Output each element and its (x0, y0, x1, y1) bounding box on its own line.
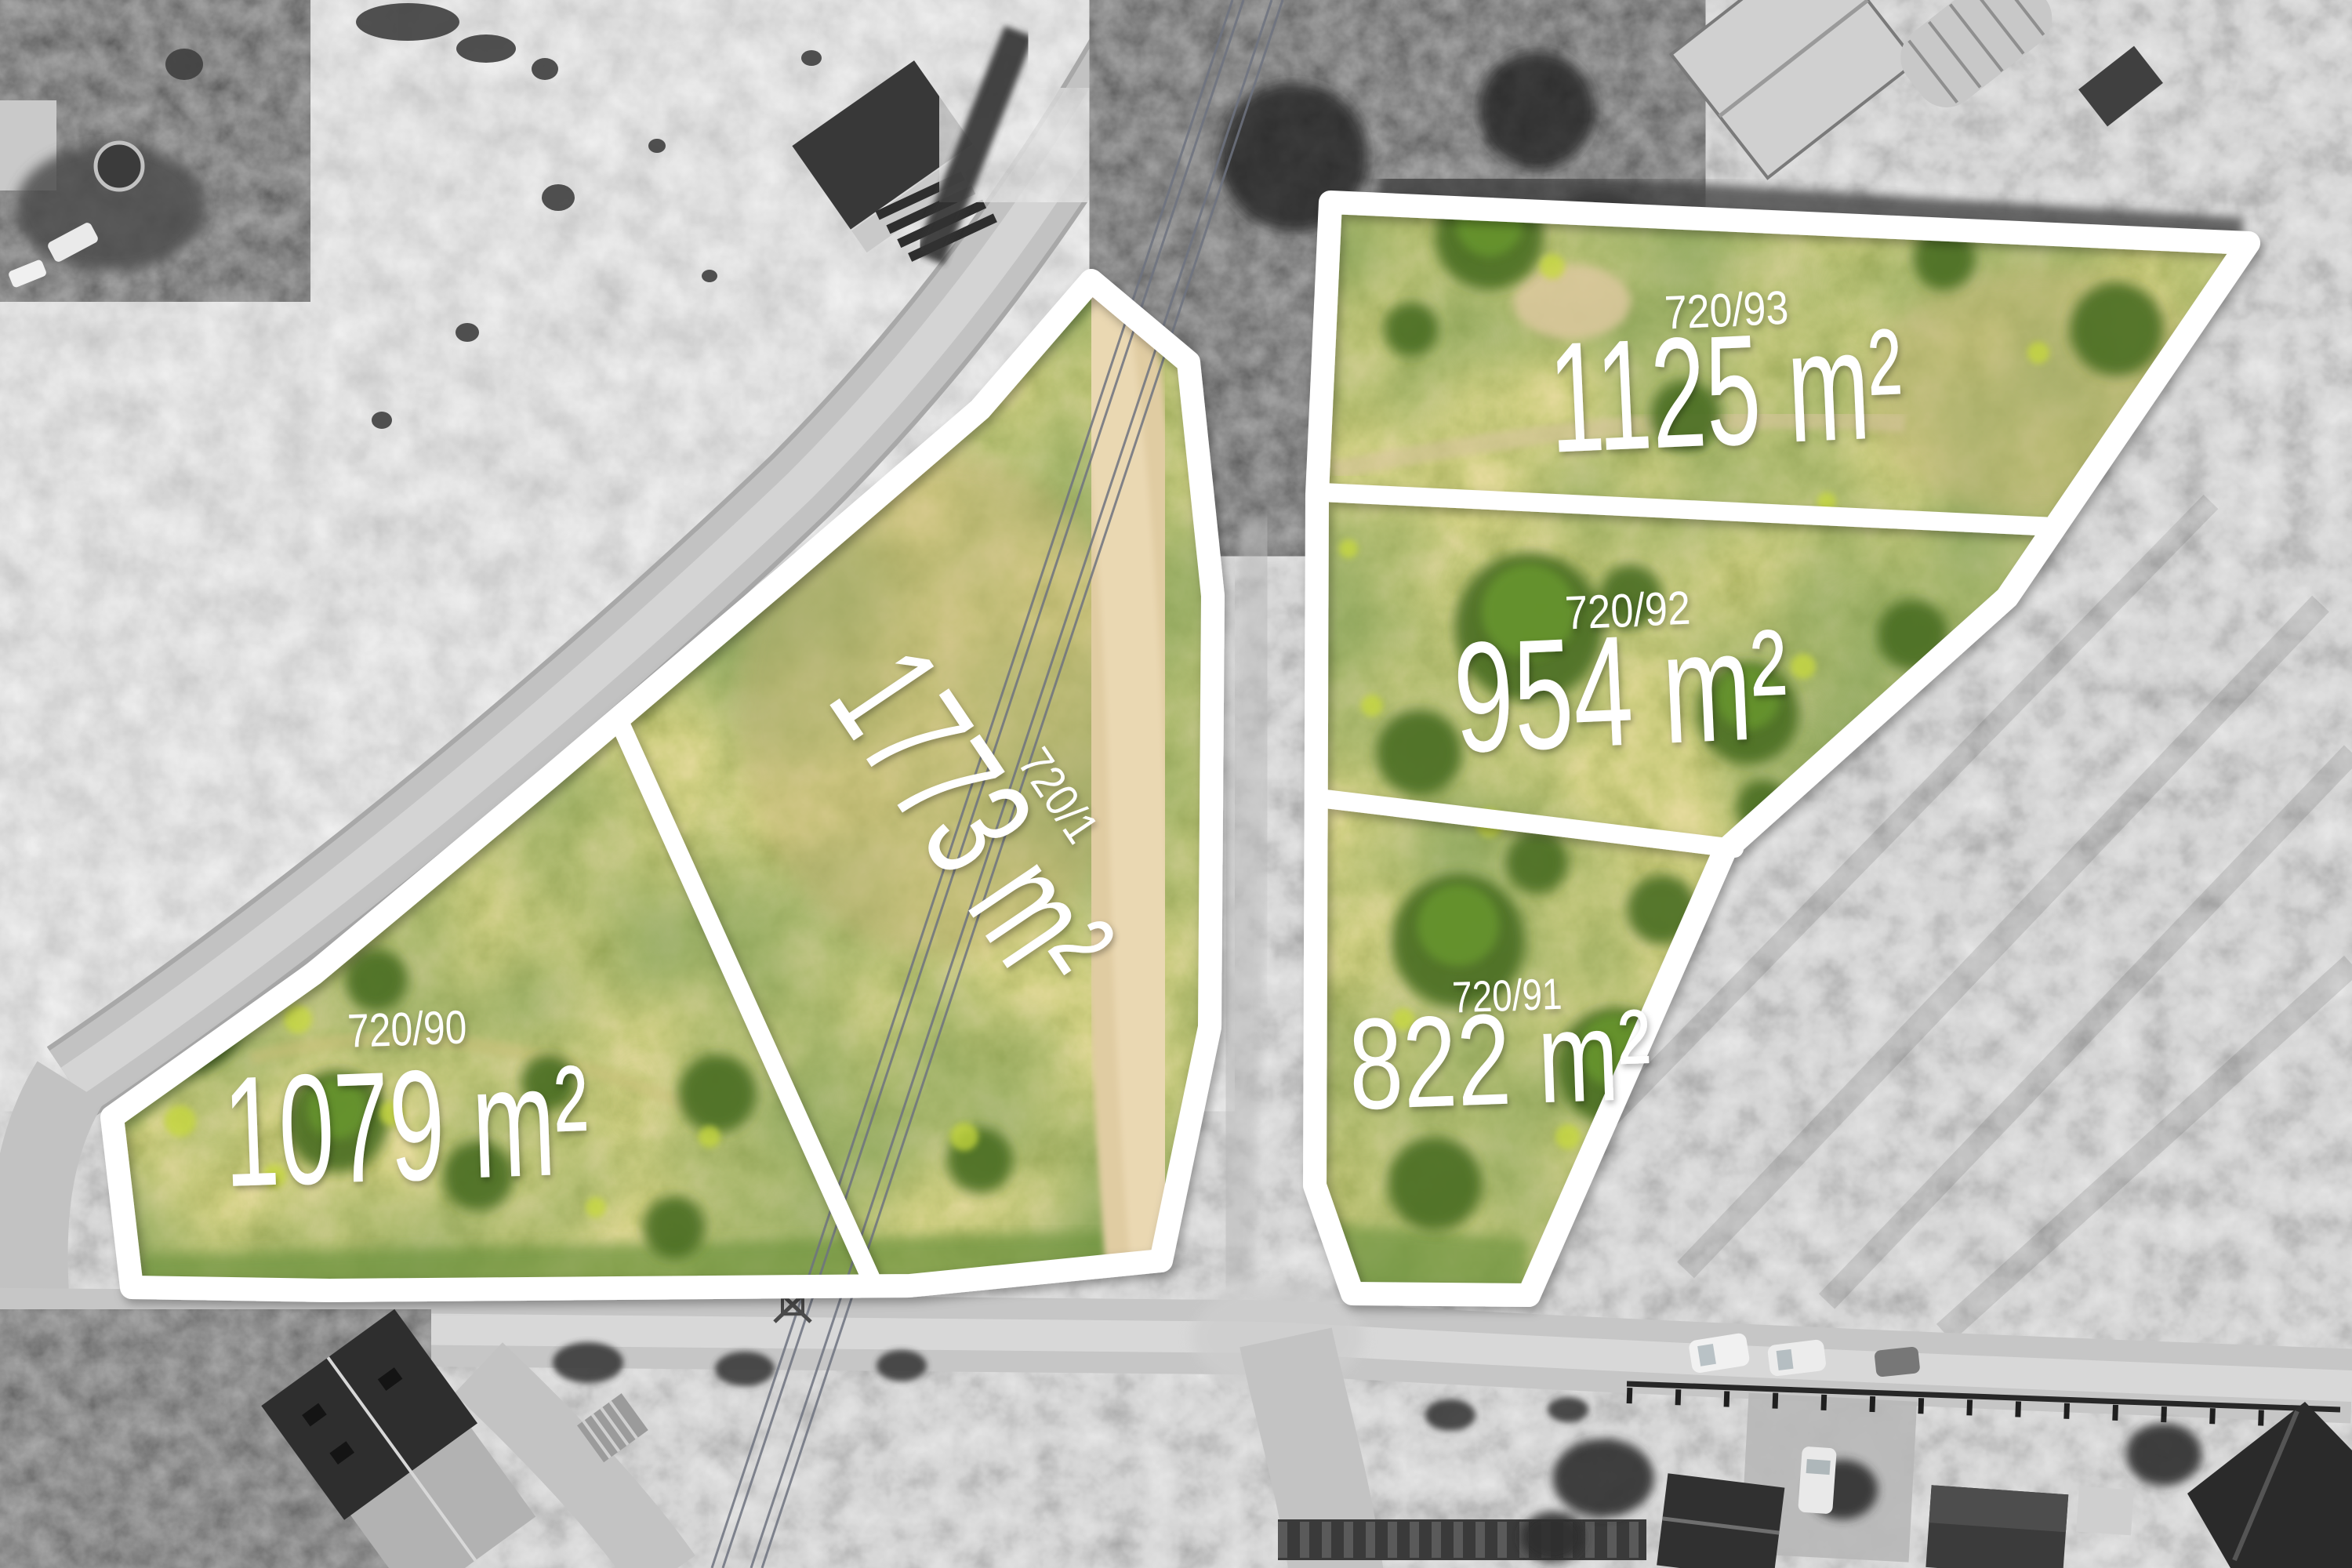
tree (456, 323, 479, 342)
bush (643, 1196, 706, 1258)
parcel-area-label-720-92: 954 m² (1450, 597, 1791, 786)
flower-patch (2027, 342, 2049, 364)
tree (1552, 1439, 1654, 1517)
flower-patch (1361, 695, 1383, 717)
car-windshield (1777, 1349, 1794, 1370)
flower-patch (699, 1126, 720, 1148)
trampoline (96, 143, 143, 190)
hedge (877, 1350, 927, 1381)
tree (1521, 1512, 1584, 1562)
bush (1388, 1137, 1482, 1231)
tree-clump (1478, 51, 1595, 169)
bush (1376, 710, 1462, 796)
bush (2070, 282, 2164, 376)
car-windshield (1697, 1344, 1716, 1367)
car (1798, 1446, 1837, 1515)
parcel-area-label-720-90: 1079 m² (220, 1033, 590, 1220)
tree (648, 139, 666, 153)
bush-highlight (1417, 884, 1499, 966)
car-windshield (1806, 1459, 1831, 1475)
parcel-area-label-720-91: 822 m² (1346, 982, 1653, 1136)
bush (678, 1054, 757, 1133)
hedge (1425, 1399, 1475, 1431)
road-left-junction (29, 1082, 71, 1317)
flower-patch (165, 1105, 196, 1137)
hedge (715, 1352, 775, 1386)
hedge (456, 34, 516, 63)
bush (1505, 831, 1568, 894)
flower-patch (1540, 254, 1565, 279)
flower-patch (1339, 539, 1358, 558)
parcel-area-label-720-93: 1125 m² (1545, 296, 1905, 485)
tree (532, 58, 558, 80)
tree (702, 270, 717, 282)
hedge (553, 1342, 623, 1383)
flower-patch (284, 1005, 312, 1033)
bush (345, 949, 408, 1011)
tree (542, 184, 575, 211)
tree (372, 412, 392, 429)
tree (801, 50, 822, 66)
tree (2126, 1423, 2201, 1486)
bush (1384, 302, 1439, 357)
hedge (356, 3, 459, 41)
flower-patch (950, 1123, 978, 1151)
flower-patch (1791, 654, 1816, 679)
tree (165, 49, 203, 80)
aerial-parcel-map: 720/901079 m²720/11773 m²720/931125 m²72… (0, 0, 2352, 1568)
hedge (1548, 1397, 1588, 1422)
car-dark (1874, 1346, 1920, 1377)
garage-roof (2076, 1486, 2134, 1536)
